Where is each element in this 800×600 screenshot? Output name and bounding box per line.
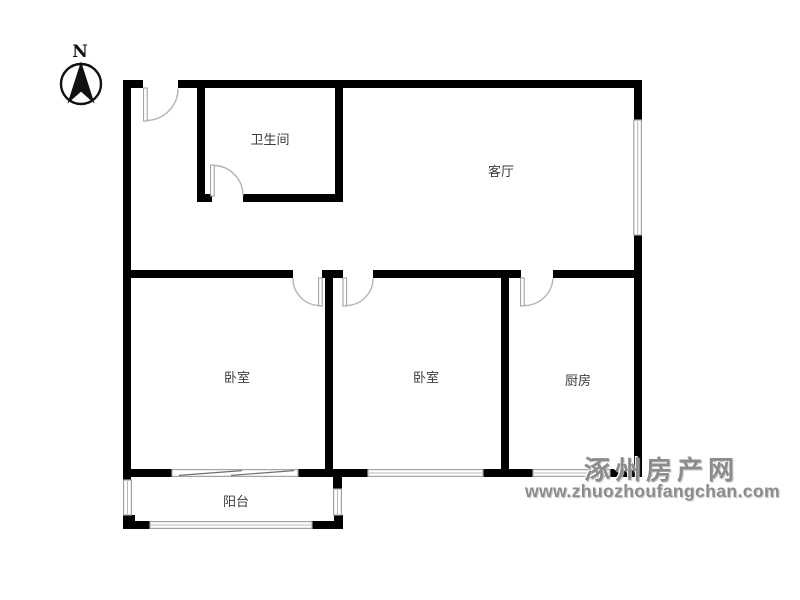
door-kitchen — [521, 278, 553, 306]
label-bedroom-middle: 卧室 — [413, 370, 439, 385]
door-bedroom-left — [293, 278, 322, 306]
watermark-site-url: www.zhuozhoufangchan.com — [525, 481, 780, 502]
window-balcony-bottom — [150, 522, 312, 529]
sliding-door-balcony — [172, 470, 298, 477]
label-kitchen: 厨房 — [565, 373, 591, 388]
label-living-room: 客厅 — [488, 164, 514, 179]
label-bedroom-left: 卧室 — [224, 370, 250, 385]
door-bathroom — [211, 165, 243, 196]
window-balcony-right — [334, 489, 342, 515]
window-bedroom-middle — [368, 470, 483, 477]
floorplan-canvas: 卫生间 客厅 卧室 卧室 厨房 阳台 N 涿州房产网 www.zhuozhouf… — [0, 0, 800, 600]
label-balcony: 阳台 — [223, 494, 249, 509]
north-compass-icon: N — [61, 42, 101, 104]
door-entrance — [144, 88, 178, 121]
label-bathroom: 卫生间 — [250, 132, 289, 147]
compass-north-letter: N — [72, 42, 88, 62]
floorplan-drawing: 卫生间 客厅 卧室 卧室 厨房 阳台 N — [0, 0, 800, 600]
room-labels: 卫生间 客厅 卧室 卧室 厨房 阳台 — [223, 132, 591, 509]
door-bedroom-middle — [343, 278, 373, 306]
window-living-room-right — [634, 120, 642, 235]
window-balcony-left — [124, 480, 132, 515]
